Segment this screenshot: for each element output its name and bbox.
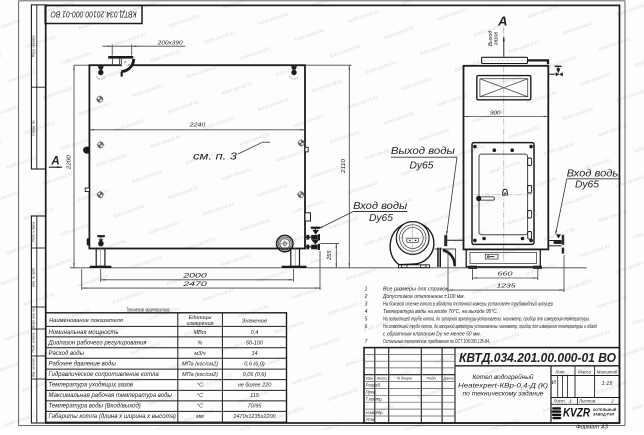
svg-text:На отводящей трубе котла, до з: На отводящей трубе котла, до запорной ар… — [383, 323, 597, 330]
svg-text:255: 255 — [327, 249, 333, 261]
svg-text:МПа (кгс/см2): МПа (кгс/см2) — [182, 362, 218, 368]
svg-text:14: 14 — [251, 351, 257, 357]
svg-text:2470х1235х2200: 2470х1235х2200 — [232, 414, 276, 420]
svg-text:МПа (кгс/см2): МПа (кгс/см2) — [182, 372, 218, 378]
svg-text:Dy65: Dy65 — [575, 179, 599, 190]
svg-text:Инв. № дубл.: Инв. № дубл. — [32, 267, 36, 287]
svg-text:KVZR: KVZR — [563, 408, 591, 420]
svg-text:Остальные технические требован: Остальные технические требования по ОСТ … — [383, 339, 490, 345]
svg-text:N докум.: N докум. — [397, 376, 413, 381]
svg-text:Температура воды на входе 70°: Температура воды на входе 70°С, на выход… — [383, 309, 498, 315]
svg-text:Масса: Масса — [578, 369, 592, 374]
svg-text:2240: 2240 — [189, 123, 207, 129]
svg-text:не более 220: не более 220 — [238, 383, 273, 389]
svg-text:КВТД.034.201.00.000-01 ВО: КВТД.034.201.00.000-01 ВО — [459, 351, 616, 365]
svg-text:2000: 2000 — [182, 272, 208, 279]
svg-text:3: 3 — [365, 302, 368, 308]
svg-text:6: 6 — [365, 324, 368, 330]
svg-text:И: И — [552, 380, 556, 386]
svg-text:2200: 2200 — [67, 154, 73, 170]
svg-text:мм: мм — [196, 414, 204, 420]
svg-text:Н.контр.: Н.контр. — [366, 410, 384, 415]
svg-text:2470: 2470 — [182, 281, 208, 288]
svg-text:А: А — [497, 14, 507, 29]
svg-text:Dy65: Dy65 — [369, 213, 393, 224]
svg-text:Перв. примен.: Перв. примен. — [32, 35, 36, 58]
svg-text:Подп. и дата: Подп. и дата — [32, 222, 36, 242]
svg-text:Габариты котла (длина х ширина: Габариты котла (длина х ширина х высота) — [49, 414, 176, 420]
svg-text:Подп. и дата: Подп. и дата — [32, 332, 36, 352]
svg-text:0,4: 0,4 — [251, 330, 259, 336]
svg-text:Все размеры для справок: Все размеры для справок — [383, 287, 449, 293]
svg-text:Пров.: Пров. — [366, 390, 377, 395]
svg-text:Котел водогрейный: Котел водогрейный — [473, 374, 535, 381]
svg-text:МВт: МВт — [194, 330, 207, 336]
svg-text:Инв. № подл.: Инв. № подл. — [32, 357, 36, 377]
svg-text:Формат А3: Формат А3 — [576, 424, 608, 430]
svg-text:Вход воды: Вход воды — [353, 201, 408, 212]
svg-text:Утв.: Утв. — [366, 417, 376, 422]
svg-text:КОТЕЛЬНЫЙ: КОТЕЛЬНЫЙ — [593, 408, 617, 412]
svg-text:Значение: Значение — [242, 318, 268, 324]
svg-text:Подп.: Подп. — [426, 376, 436, 381]
svg-text:см. п. 3: см. п. 3 — [193, 150, 237, 162]
svg-text:50-100: 50-100 — [246, 341, 264, 347]
svg-text:КВТД.034.20100.000-01 ВО: КВТД.034.20100.000-01 ВО — [50, 10, 136, 20]
svg-text:70/95: 70/95 — [248, 404, 263, 410]
svg-text:1: 1 — [365, 287, 368, 293]
svg-text:Диапазон рабочего регулировани: Диапазон рабочего регулирования — [48, 341, 148, 347]
svg-text:°С: °С — [197, 383, 203, 389]
svg-text:Лит.: Лит. — [554, 369, 565, 374]
svg-text:900: 900 — [490, 110, 501, 116]
svg-text:2: 2 — [610, 399, 614, 404]
svg-text:2: 2 — [364, 294, 368, 300]
svg-text:по техническому задание: по техническому задание — [463, 390, 545, 397]
svg-text:Выход воды: Выход воды — [391, 146, 456, 157]
svg-text:Т.контр.: Т.контр. — [366, 396, 383, 401]
svg-text:А: А — [50, 156, 59, 168]
svg-text:7: 7 — [365, 339, 368, 345]
svg-text:°С: °С — [197, 404, 203, 410]
svg-text:ЗАВОД РЭП: ЗАВОД РЭП — [593, 413, 615, 417]
svg-text:Наименование показателя: Наименование показателя — [49, 318, 123, 324]
svg-text:На боковой стенке котла в обла: На боковой стенке котла в области топочн… — [383, 301, 553, 308]
svg-text:м3/ч: м3/ч — [194, 351, 205, 357]
svg-text:измерения: измерения — [187, 321, 214, 327]
svg-text:Рабочее давление воды: Рабочее давление воды — [49, 362, 117, 368]
svg-text:1235: 1235 — [497, 283, 517, 289]
svg-text:Лист: Лист — [376, 376, 388, 381]
svg-text:Дата: Дата — [442, 376, 454, 381]
svg-text:Максимальная рабочая температу: Максимальная рабочая температура воды — [49, 393, 173, 399]
svg-text:115: 115 — [250, 393, 260, 399]
svg-text:2110: 2110 — [341, 158, 347, 174]
svg-text:Изм: Изм — [366, 376, 374, 381]
svg-text:Гидравлическое сопротивление к: Гидравлическое сопротивление котла — [49, 372, 160, 378]
svg-text:Листов: Листов — [578, 399, 596, 404]
svg-text:Расход воды: Расход воды — [49, 351, 85, 357]
svg-text:Взам. инв. №: Взам. инв. № — [32, 308, 36, 328]
svg-text:Heatexpert-КВр-0,4-Д (К): Heatexpert-КВр-0,4-Д (К) — [458, 383, 548, 390]
svg-text:1:15: 1:15 — [602, 381, 614, 387]
svg-text:Справ. №: Справ. № — [32, 120, 36, 136]
svg-text:Номинальная мощность: Номинальная мощность — [49, 330, 119, 336]
svg-text:4: 4 — [365, 309, 368, 315]
svg-text:0,6 (6,0): 0,6 (6,0) — [244, 362, 265, 368]
svg-text:Температура уходящих газов: Температура уходящих газов — [49, 383, 134, 389]
svg-text:Допустимое отклонение ±100 мм: Допустимое отклонение ±100 мм. — [382, 294, 465, 300]
svg-text:660: 660 — [498, 271, 514, 277]
svg-text:5: 5 — [365, 317, 368, 323]
svg-text:°С: °С — [197, 393, 203, 399]
svg-text:200х390: 200х390 — [157, 41, 184, 47]
svg-text:На подводящей трубе котла, до: На подводящей трубе котла, до запорной а… — [383, 316, 590, 323]
svg-text:с обратным клапаном Dу не мен: с обратным клапаном Dу не менее 50 мм. — [383, 331, 481, 337]
svg-text:Разраб.: Разраб. — [366, 383, 382, 388]
svg-text:Вход воды: Вход воды — [567, 168, 622, 179]
svg-text:0,06 (0,6): 0,06 (0,6) — [243, 372, 267, 378]
svg-text:Лист: Лист — [552, 399, 565, 404]
svg-text:Dy65: Dy65 — [410, 161, 434, 172]
svg-text:газов: газов — [494, 32, 500, 46]
svg-text:Масштаб: Масштаб — [597, 369, 618, 374]
svg-text:%: % — [198, 341, 203, 347]
svg-text:Температура воды (Вход/выход): Температура воды (Вход/выход) — [49, 404, 141, 410]
